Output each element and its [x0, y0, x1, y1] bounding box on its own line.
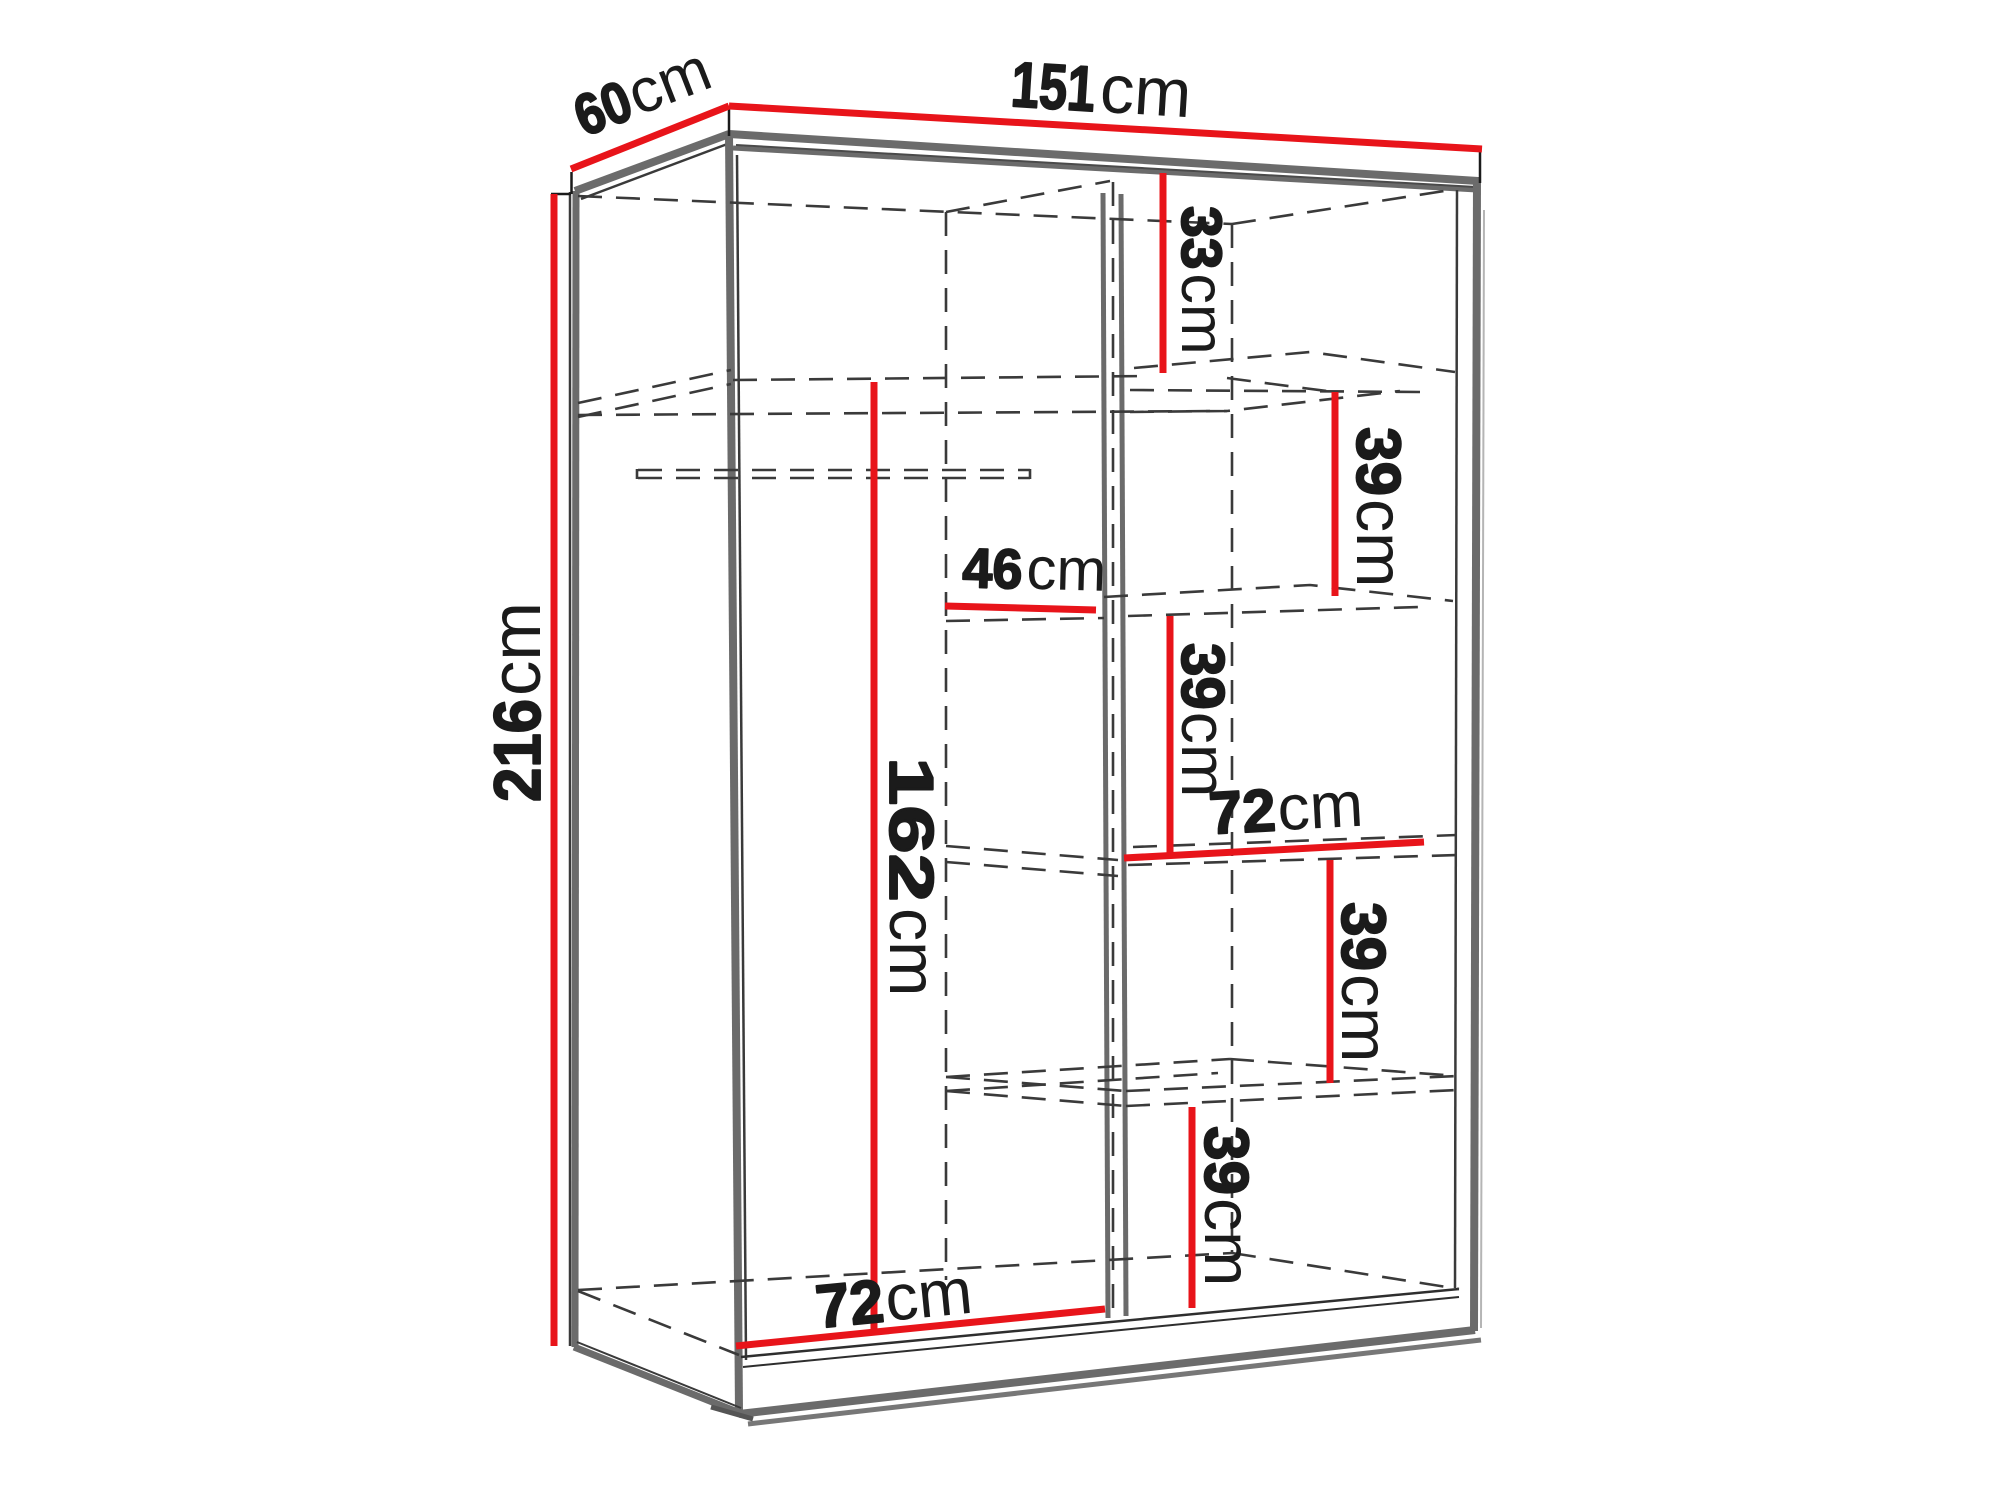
- svg-text:39cm: 39cm: [1342, 427, 1416, 587]
- svg-text:162cm: 162cm: [875, 757, 949, 996]
- svg-text:151cm: 151cm: [1009, 44, 1194, 132]
- svg-text:39cm: 39cm: [1327, 902, 1401, 1062]
- svg-text:216cm: 216cm: [476, 602, 555, 802]
- svg-text:33cm: 33cm: [1169, 206, 1237, 355]
- svg-text:46cm: 46cm: [962, 533, 1108, 604]
- svg-text:39cm: 39cm: [1168, 643, 1240, 797]
- svg-text:39cm: 39cm: [1190, 1126, 1264, 1286]
- svg-text:72cm: 72cm: [1207, 768, 1365, 848]
